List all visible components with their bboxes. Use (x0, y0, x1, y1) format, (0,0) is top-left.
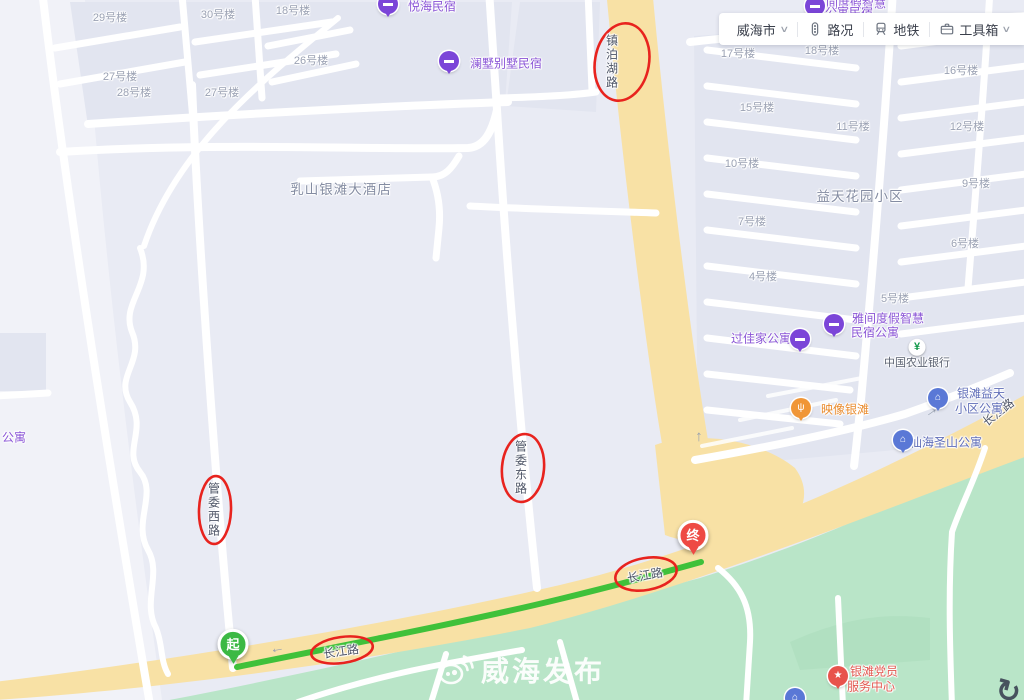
traffic-button[interactable]: 路况 (798, 20, 863, 39)
chevron-down-icon: ∨ (779, 24, 789, 35)
metro-button[interactable]: 地铁 (864, 20, 929, 39)
toolbox-label: 工具箱 (959, 20, 998, 39)
traffic-label: 路况 (827, 20, 853, 39)
map-toolbar: 威海市 ∨ 路况 地铁 (719, 13, 1024, 45)
city-label: 威海市 (737, 20, 776, 39)
watermark: 威海发布 (436, 650, 605, 690)
city-blocks (0, 2, 1024, 468)
map-app: 29号楼30号楼18号楼26号楼27号楼28号楼27号楼17号楼18号楼16号楼… (0, 0, 1024, 700)
city-selector[interactable]: 威海市 ∨ (727, 20, 798, 39)
chevron-down-icon: ∨ (1002, 24, 1012, 35)
watermark-text: 威海发布 (481, 650, 605, 690)
toolbox-icon (940, 22, 954, 36)
map-canvas[interactable] (0, 0, 1024, 700)
weibo-icon (436, 651, 474, 689)
traffic-light-icon (808, 22, 822, 36)
metro-icon (874, 22, 888, 36)
toolbox-button[interactable]: 工具箱 ∨ (930, 20, 1020, 39)
metro-label: 地铁 (893, 20, 919, 39)
